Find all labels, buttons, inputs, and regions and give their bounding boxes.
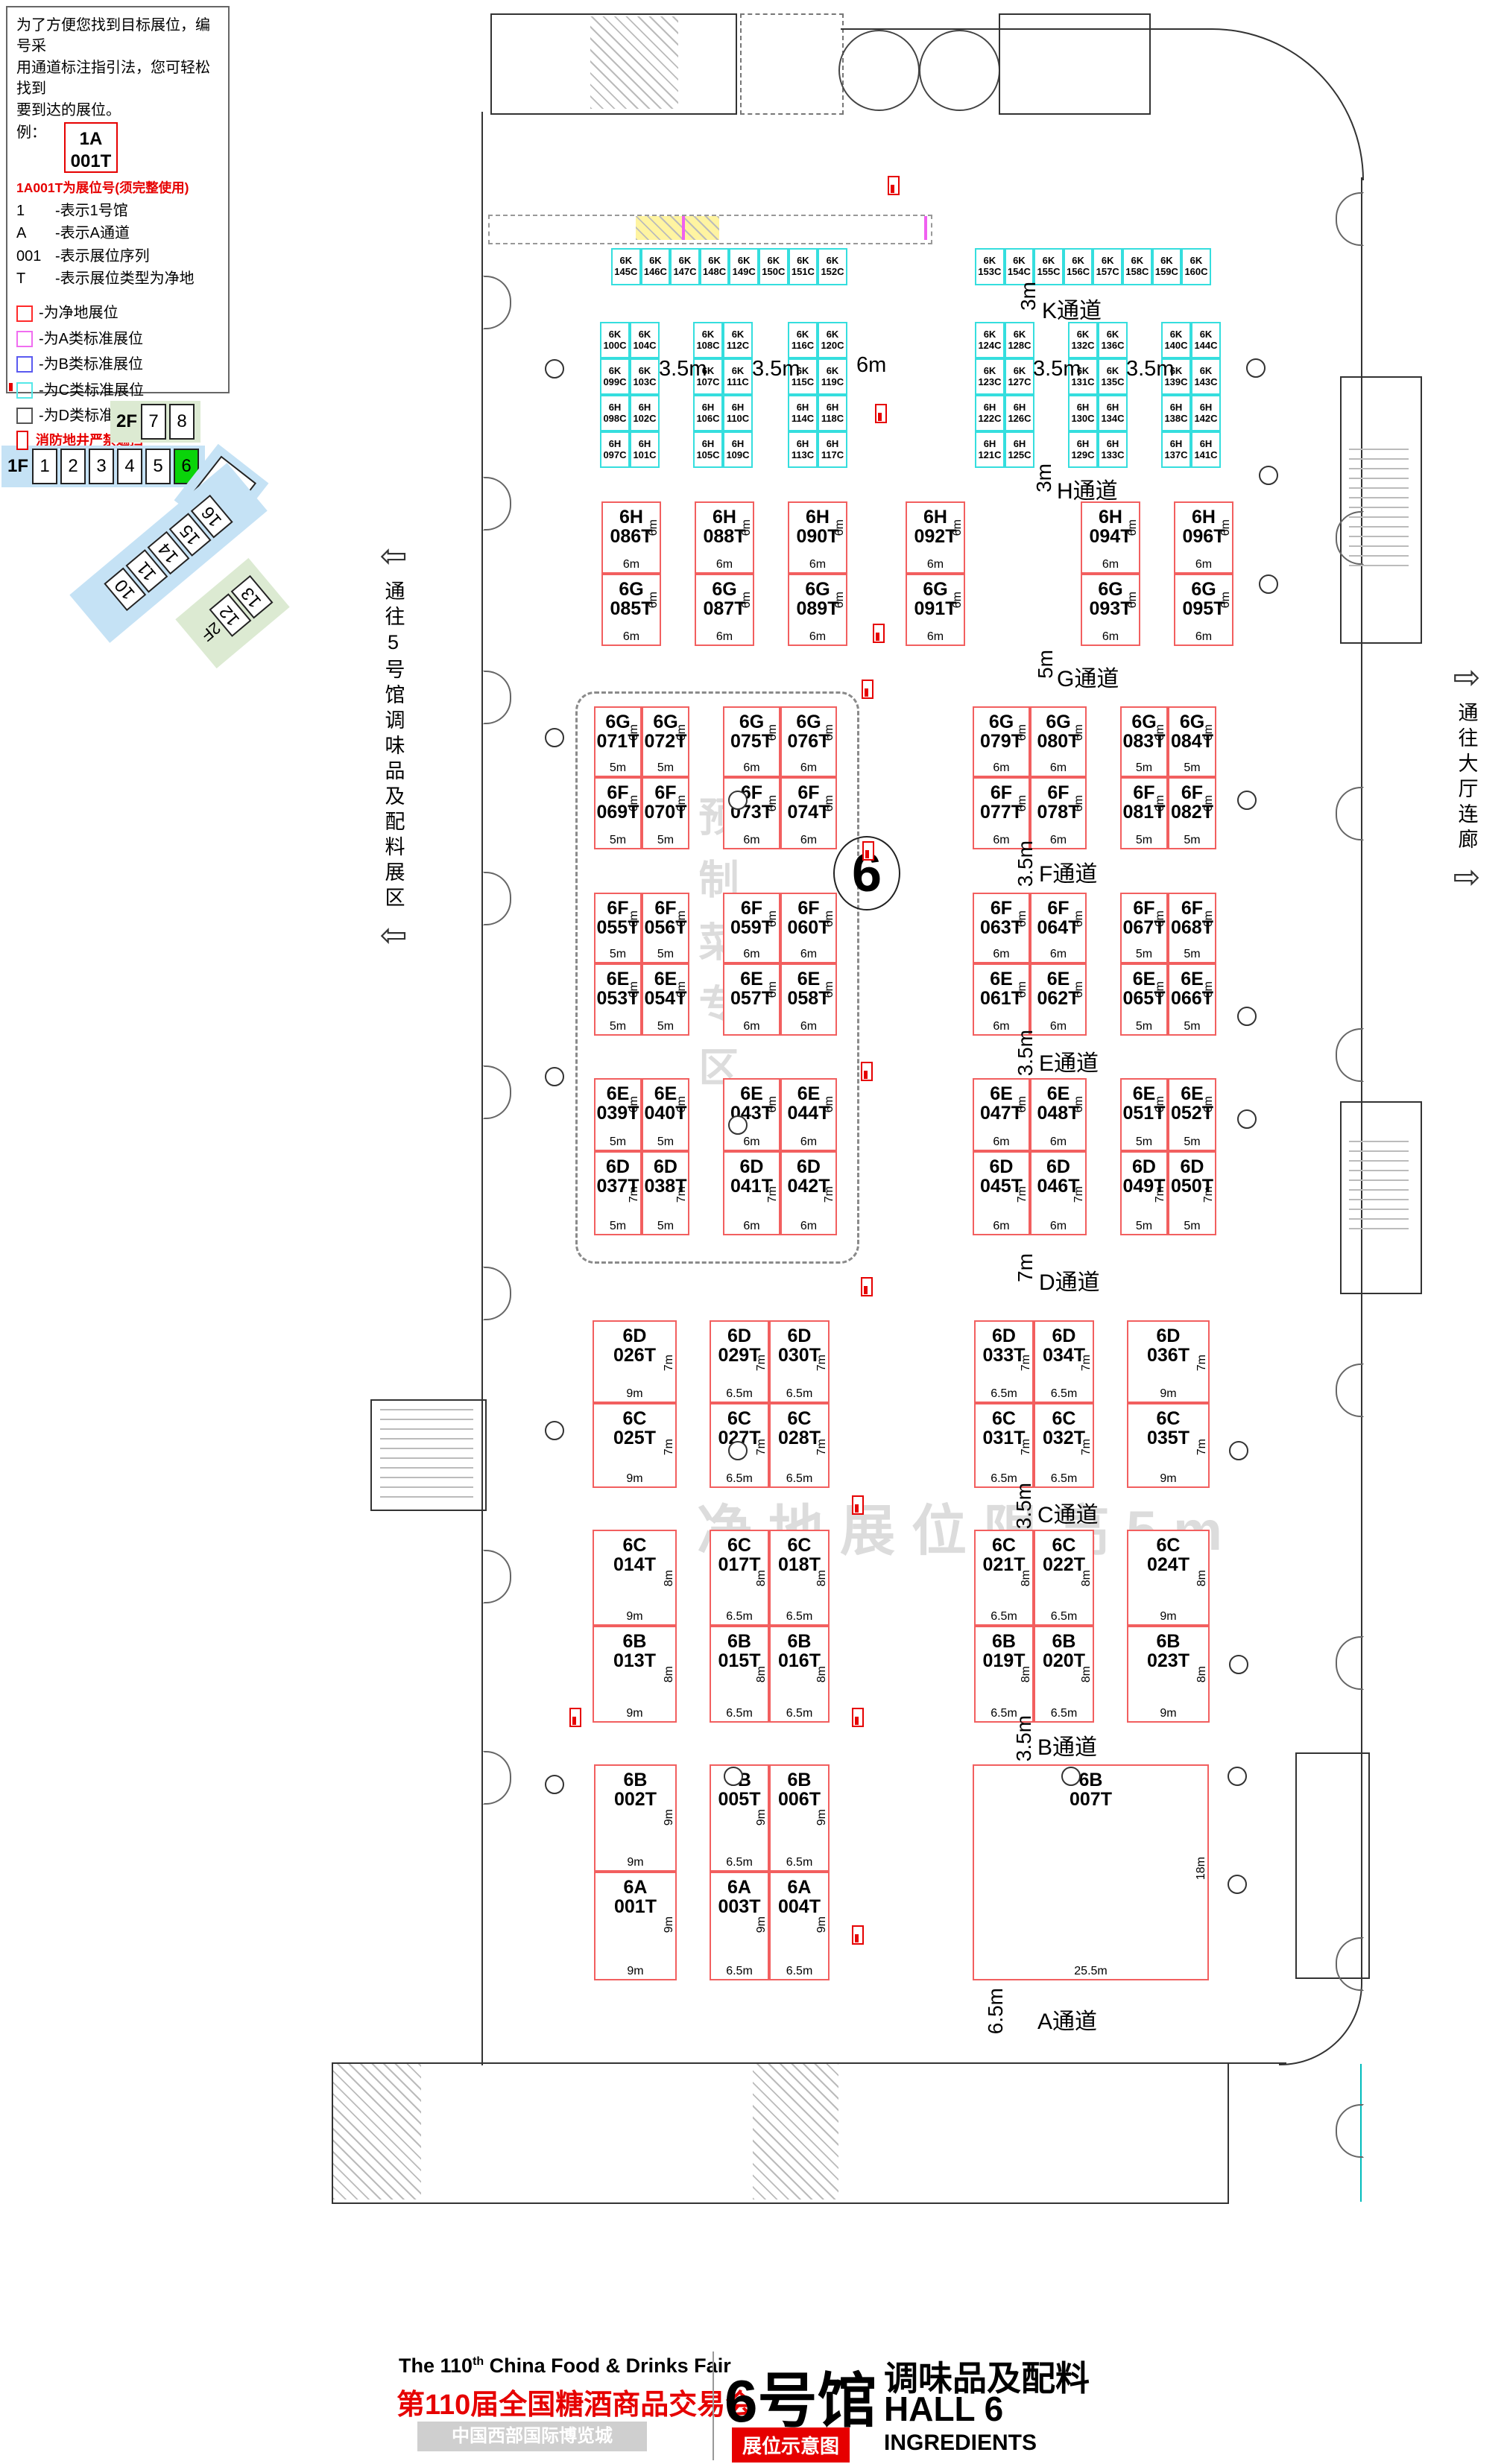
- booth-6D037T: 6D037T7m5m: [594, 1151, 642, 1235]
- pillar-icon: [724, 1767, 743, 1786]
- door-arc-icon: [1336, 1389, 1364, 1417]
- booth-type-swatch: [16, 408, 33, 424]
- booth-6E065T: 6E065T6m5m: [1120, 963, 1168, 1036]
- booth-6G080T: 6G080T6m6m: [1030, 706, 1087, 777]
- pillar-icon: [545, 1421, 564, 1440]
- booth-6C032T: 6C032T7m6.5m: [1034, 1403, 1094, 1488]
- booth-6H141C: 6H141C: [1191, 431, 1221, 468]
- booth-6G072T: 6G072T6m5m: [642, 706, 689, 777]
- minimap-hall-1: 1: [32, 449, 57, 484]
- booth-6K146C: 6K146C: [641, 248, 671, 285]
- booth-6E047T: 6E047T6m6m: [973, 1078, 1030, 1151]
- legend-type-row: -为净地展位: [16, 303, 219, 323]
- door-arc-icon: [1336, 1662, 1364, 1690]
- booth-6C018T: 6C018T8m6.5m: [769, 1530, 830, 1626]
- booth-6H113C: 6H113C: [788, 431, 818, 468]
- pillar-icon: [1228, 1767, 1247, 1786]
- fire-well-icon: [852, 1495, 864, 1515]
- booth-6G079T: 6G079T6m6m: [973, 706, 1030, 777]
- booth-6K136C: 6K136C: [1098, 322, 1128, 358]
- legend-code-row: T-表示展位类型为净地: [16, 268, 219, 289]
- fire-well-icon: [862, 841, 874, 861]
- door-arc-icon: [1336, 787, 1364, 815]
- booth-6K148C: 6K148C: [700, 248, 730, 285]
- legend-type-row: -为B类标准展位: [16, 354, 219, 375]
- booth-6F067T: 6F067T6m5m: [1120, 893, 1168, 963]
- door-arc-icon: [483, 1776, 511, 1805]
- booth-6E043T: 6E043T6m6m: [723, 1078, 780, 1151]
- booth-6K150C: 6K150C: [759, 248, 789, 285]
- door-arc-icon: [483, 276, 511, 304]
- booth-6H109C: 6H109C: [723, 431, 753, 468]
- booth-6G095T: 6G095T6m6m: [1174, 574, 1233, 646]
- booth-type-swatch: [16, 356, 33, 373]
- booth-6F060T: 6F060T6m6m: [780, 893, 837, 963]
- pillar-icon: [1237, 791, 1257, 810]
- fire-well-icon: [861, 1277, 873, 1296]
- door-arc-icon: [483, 1292, 511, 1320]
- minimap-hall-2: 2: [60, 449, 86, 484]
- booth-6D033T: 6D033T7m6.5m: [974, 1320, 1034, 1403]
- door-arc-icon: [1336, 1054, 1364, 1082]
- booth-6K100C: 6K100C: [600, 322, 630, 358]
- aisle-H-width: 3m: [1032, 463, 1056, 493]
- aisle-C-width: 3.5m: [1012, 1483, 1036, 1529]
- legend-intro-line: 要到达的展位。: [16, 100, 219, 121]
- booth-6H142C: 6H142C: [1191, 395, 1221, 431]
- legend-code-row: A-表示A通道: [16, 223, 219, 244]
- booth-6C028T: 6C028T7m6.5m: [769, 1403, 830, 1488]
- pillar-icon: [1259, 574, 1278, 594]
- booth-6K108C: 6K108C: [693, 322, 723, 358]
- minimap-hall-4: 4: [117, 449, 142, 484]
- pillar-icon: [1237, 1007, 1257, 1026]
- booth-6E058T: 6E058T6m6m: [780, 963, 837, 1036]
- fire-well-icon: [569, 1708, 581, 1727]
- right-arrow-icon: ⇨: [1453, 662, 1481, 694]
- booth-6F063T: 6F063T6m6m: [973, 893, 1030, 963]
- pillar-icon: [1259, 466, 1278, 485]
- booth-6F064T: 6F064T6m6m: [1030, 893, 1087, 963]
- booth-6E061T: 6E061T6m6m: [973, 963, 1030, 1036]
- minimap-floor2-label: 2F: [116, 411, 137, 432]
- booth-6K103C: 6K103C: [630, 358, 660, 395]
- aisle-A-width: 6.5m: [984, 1988, 1008, 2034]
- booth-type-swatch: [16, 382, 33, 399]
- booth-6D050T: 6D050T7m5m: [1168, 1151, 1216, 1235]
- minimap-floor1-halls: 123456: [32, 449, 199, 484]
- booth-6H097C: 6H097C: [600, 431, 630, 468]
- booth-6E053T: 6E053T6m5m: [594, 963, 642, 1036]
- door-arc-icon: [483, 872, 511, 900]
- minimap-floor2: 2F 78: [110, 401, 200, 443]
- route-to-hall5-label: ⇦ 通往5号馆调味品及配料展区 ⇦: [371, 540, 416, 952]
- minimap-floor2-halls: 78: [141, 404, 195, 440]
- legend-intro-line: 用通道标注指引法，您可轻松找到: [16, 57, 219, 100]
- booth-6K099C: 6K099C: [600, 358, 630, 395]
- fire-well-icon: [862, 680, 873, 699]
- booth-6E039T: 6E039T6m5m: [594, 1078, 642, 1151]
- booth-6E052T: 6E052T6m5m: [1168, 1078, 1216, 1151]
- door-arc-icon: [483, 897, 511, 925]
- legend-code-row: 1-表示1号馆: [16, 200, 219, 221]
- fire-well-icon: [861, 1062, 873, 1081]
- stairs-hatch: [590, 16, 678, 109]
- pillar-icon: [1228, 1875, 1247, 1894]
- legend-type-row: -为C类标准展位: [16, 380, 219, 401]
- booth-6D046T: 6D046T7m6m: [1030, 1151, 1087, 1235]
- booth-6G076T: 6G076T6m6m: [780, 706, 837, 777]
- booth-6K128C: 6K128C: [1005, 322, 1034, 358]
- booth-6B013T: 6B013T8m9m: [593, 1626, 677, 1723]
- booth-6H122C: 6H122C: [975, 395, 1005, 431]
- booth-6E051T: 6E051T6m5m: [1120, 1078, 1168, 1151]
- booth-6F077T: 6F077T6m6m: [973, 777, 1030, 849]
- booth-6H121C: 6H121C: [975, 431, 1005, 468]
- aisle-C-name: C通道: [1037, 1496, 1099, 1529]
- booth-6H125C: 6H125C: [1005, 431, 1034, 468]
- booth-6H101C: 6H101C: [630, 431, 660, 468]
- booth-6E062T: 6E062T6m6m: [1030, 963, 1087, 1036]
- pillar-icon: [728, 1115, 748, 1135]
- booth-6C021T: 6C021T8m6.5m: [974, 1530, 1034, 1626]
- venue-bar: 中国西部国际博览城: [417, 2422, 647, 2451]
- booth-6F055T: 6F055T6m5m: [594, 893, 642, 963]
- minimap-hall-7: 7: [141, 404, 166, 440]
- booth-6H110C: 6H110C: [723, 395, 753, 431]
- booth-6F081T: 6F081T6m5m: [1120, 777, 1168, 849]
- aisle-G-width: 5m: [1034, 650, 1058, 679]
- aisle-A-name: A通道: [1037, 2003, 1097, 2036]
- example-booth-line2: 001T: [66, 151, 116, 173]
- booth-6K120C: 6K120C: [818, 322, 847, 358]
- left-arrow-icon: ⇦: [380, 919, 408, 952]
- wall-bottom: [1226, 2062, 1286, 2064]
- booth-6H090T: 6H090T6m6m: [788, 501, 847, 574]
- gap-width-label: 3.5m: [659, 357, 707, 381]
- booth-6H126C: 6H126C: [1005, 395, 1034, 431]
- pillar-icon: [728, 1441, 748, 1460]
- magenta-tick: [682, 216, 685, 240]
- pillar-icon: [1237, 1109, 1257, 1129]
- booth-6K160C: 6K160C: [1181, 248, 1211, 285]
- booth-6F070T: 6F070T6m5m: [642, 777, 689, 849]
- gap-width-label: 6m: [856, 353, 886, 378]
- door-arc-icon: [483, 1267, 511, 1295]
- fire-well-icon: [873, 624, 885, 643]
- aisle-B-name: B通道: [1037, 1729, 1097, 1761]
- booth-6H088T: 6H088T6m6m: [695, 501, 754, 574]
- gap-width-label: 3.5m: [752, 357, 800, 381]
- booth-6E040T: 6E040T6m5m: [642, 1078, 689, 1151]
- booth-6H129C: 6H129C: [1068, 431, 1098, 468]
- minimap-diagonal-2f: 2F 1213: [175, 558, 289, 668]
- stairs-hatch: [753, 2064, 838, 2199]
- booth-6H105C: 6H105C: [693, 431, 723, 468]
- booth-6K112C: 6K112C: [723, 322, 753, 358]
- booth-6F068T: 6F068T6m5m: [1168, 893, 1216, 963]
- booth-6K132C: 6K132C: [1068, 322, 1098, 358]
- booth-6A001T: 6A001T9m9m: [594, 1872, 677, 1980]
- booth-6B015T: 6B015T8m6.5m: [710, 1626, 769, 1723]
- minimap-floor1: 1F 123456: [1, 446, 205, 487]
- booth-6K152C: 6K152C: [818, 248, 847, 285]
- aisle-K-name: K通道: [1042, 292, 1102, 325]
- booth-6A003T: 6A003T9m6.5m: [710, 1872, 769, 1980]
- aisle-K-width: 3m: [1017, 282, 1040, 311]
- booth-6H114C: 6H114C: [788, 395, 818, 431]
- aisle-E-width: 3.5m: [1014, 1030, 1037, 1076]
- door-arc-icon: [483, 1751, 511, 1779]
- booth-6G087T: 6G087T6m6m: [695, 574, 754, 646]
- booth-6H092T: 6H092T6m6m: [906, 501, 965, 574]
- booth-6E048T: 6E048T6m6m: [1030, 1078, 1087, 1151]
- booth-6K127C: 6K127C: [1005, 358, 1034, 395]
- booth-6H094T: 6H094T6m6m: [1081, 501, 1140, 574]
- booth-6K111C: 6K111C: [723, 358, 753, 395]
- booth-6G091T: 6G091T6m6m: [906, 574, 965, 646]
- booth-6E044T: 6E044T6m6m: [780, 1078, 837, 1151]
- aisle-G-name: G通道: [1057, 660, 1119, 693]
- wall-corner-topright: [1148, 28, 1364, 180]
- entrance-revolving-door: [919, 30, 1000, 111]
- door-arc-icon: [1336, 1636, 1364, 1665]
- door-arc-icon: [483, 1575, 511, 1603]
- booth-type-swatch: [16, 305, 33, 322]
- booth-6K156C: 6K156C: [1064, 248, 1093, 285]
- booth-6K144C: 6K144C: [1191, 322, 1221, 358]
- booth-type-swatch: [16, 331, 33, 347]
- legend-type-row: -为A类标准展位: [16, 329, 219, 349]
- booth-6C025T: 6C025T7m9m: [593, 1403, 677, 1488]
- booth-6F082T: 6F082T6m5m: [1168, 777, 1216, 849]
- pillar-icon: [1229, 1655, 1248, 1674]
- pillar-icon: [545, 728, 564, 747]
- door-arc-icon: [483, 671, 511, 699]
- booth-6F078T: 6F078T6m6m: [1030, 777, 1087, 849]
- pillar-icon: [1246, 358, 1266, 378]
- door-arc-icon: [483, 1065, 511, 1094]
- booth-6C017T: 6C017T8m6.5m: [710, 1530, 769, 1626]
- booth-6E057T: 6E057T6m6m: [723, 963, 780, 1036]
- magenta-tick: [924, 216, 927, 240]
- booth-6G093T: 6G093T6m6m: [1081, 574, 1140, 646]
- pillar-icon: [1229, 1441, 1248, 1460]
- booth-6B002T: 6B002T9m9m: [594, 1764, 677, 1872]
- category-title-en: INGREDIENTS: [884, 2430, 1037, 2456]
- booth-6B020T: 6B020T8m6.5m: [1034, 1626, 1094, 1723]
- booth-6K157C: 6K157C: [1093, 248, 1122, 285]
- booth-6C014T: 6C014T8m9m: [593, 1530, 677, 1626]
- booth-6F056T: 6F056T6m5m: [642, 893, 689, 963]
- pillar-icon: [728, 791, 748, 810]
- pillar-icon: [545, 359, 564, 379]
- aisle-H-name: H通道: [1057, 472, 1118, 505]
- booth-6F069T: 6F069T6m5m: [594, 777, 642, 849]
- door-arc-icon: [483, 477, 511, 505]
- stairs-hatch: [333, 2064, 421, 2199]
- booth-6K119C: 6K119C: [818, 358, 847, 395]
- booth-6K155C: 6K155C: [1034, 248, 1064, 285]
- booth-6D030T: 6D030T7m6.5m: [769, 1320, 830, 1403]
- booth-6K159C: 6K159C: [1152, 248, 1182, 285]
- booth-6H138C: 6H138C: [1161, 395, 1191, 431]
- booth-6K123C: 6K123C: [975, 358, 1005, 395]
- door-arc-icon: [483, 502, 511, 531]
- right-arrow-icon: ⇨: [1453, 861, 1481, 894]
- legend-example-note: 1A001T为展位号(须完整使用): [16, 179, 219, 197]
- door-arc-icon: [483, 301, 511, 329]
- booth-6K147C: 6K147C: [670, 248, 700, 285]
- booth-6B016T: 6B016T8m6.5m: [769, 1626, 830, 1723]
- aisle-F-width: 3.5m: [1014, 840, 1037, 887]
- hall-title-cn: 6号馆: [724, 2353, 877, 2439]
- minimap-floor1-label: 1F: [7, 456, 28, 477]
- hall-title-en: HALL 6: [884, 2389, 1003, 2429]
- fire-well-icon: [852, 1708, 864, 1727]
- stairs-hatch: [380, 1408, 473, 1498]
- wall-top: [841, 28, 1152, 30]
- door-arc-icon: [483, 696, 511, 724]
- door-arc-icon: [1336, 192, 1364, 221]
- booth-6G071T: 6G071T6m5m: [594, 706, 642, 777]
- door-arc-icon: [1336, 1028, 1364, 1057]
- stair-strip-highlight: [636, 216, 719, 240]
- aisle-E-name: E通道: [1039, 1045, 1099, 1077]
- booth-6H117C: 6H117C: [818, 431, 847, 468]
- booth-6F073T: 6F073T6m6m: [723, 777, 780, 849]
- booth-6K153C: 6K153C: [975, 248, 1005, 285]
- fire-well-icon: [875, 404, 887, 423]
- booth-6D029T: 6D029T7m6.5m: [710, 1320, 769, 1403]
- door-arc-icon: [1336, 218, 1364, 246]
- example-booth-line1: 1A: [66, 128, 116, 151]
- door-arc-icon: [483, 1550, 511, 1578]
- entrance-revolving-door: [838, 30, 920, 111]
- booth-6H086T: 6H086T6m6m: [601, 501, 661, 574]
- booth-6H096T: 6H096T6m6m: [1174, 501, 1233, 574]
- booth-6K151C: 6K151C: [789, 248, 818, 285]
- booth-6H102C: 6H102C: [630, 395, 660, 431]
- aisle-F-name: F通道: [1039, 855, 1097, 888]
- booth-6H137C: 6H137C: [1161, 431, 1191, 468]
- booth-6B023T: 6B023T8m9m: [1127, 1626, 1210, 1723]
- left-arrow-icon: ⇦: [380, 540, 408, 573]
- footer-divider: [713, 2351, 714, 2460]
- booth-6B007T: 6B007T18m25.5m: [973, 1764, 1209, 1980]
- top-room-block: [740, 13, 844, 115]
- booth-6D042T: 6D042T7m6m: [780, 1151, 837, 1235]
- booth-6K116C: 6K116C: [788, 322, 818, 358]
- booth-6D038T: 6D038T7m5m: [642, 1151, 689, 1235]
- booth-6D036T: 6D036T7m9m: [1127, 1320, 1210, 1403]
- hall6-floorplan: 为了方便您找到目标展位，编号采 用通道标注指引法，您可轻松找到 要到达的展位。 …: [0, 0, 1507, 2464]
- stairs-hatch: [1349, 1140, 1409, 1229]
- booth-6K154C: 6K154C: [1005, 248, 1034, 285]
- pillar-icon: [545, 1775, 564, 1794]
- minimap-hall-8: 8: [169, 404, 195, 440]
- booth-6K149C: 6K149C: [729, 248, 759, 285]
- booth-6B006T: 6B006T9m6.5m: [769, 1764, 830, 1872]
- booth-6D034T: 6D034T7m6.5m: [1034, 1320, 1094, 1403]
- booth-6G075T: 6G075T6m6m: [723, 706, 780, 777]
- booth-6H130C: 6H130C: [1068, 395, 1098, 431]
- booth-6H106C: 6H106C: [693, 395, 723, 431]
- fair-title-en: The 110th China Food & Drinks Fair: [399, 2354, 731, 2378]
- booth-6K145C: 6K145C: [611, 248, 641, 285]
- minimap-hall-3: 3: [89, 449, 114, 484]
- booth-6G083T: 6G083T6m5m: [1120, 706, 1168, 777]
- booth-6G084T: 6G084T6m5m: [1168, 706, 1216, 777]
- gap-width-label: 3.5m: [1126, 357, 1174, 381]
- minimap-hall-5: 5: [145, 449, 171, 484]
- booth-6C031T: 6C031T7m6.5m: [974, 1403, 1034, 1488]
- booth-6C035T: 6C035T7m9m: [1127, 1403, 1210, 1488]
- legend-box: 为了方便您找到目标展位，编号采 用通道标注指引法，您可轻松找到 要到达的展位。 …: [6, 6, 230, 393]
- booth-6H098C: 6H098C: [600, 395, 630, 431]
- booth-6E066T: 6E066T6m5m: [1168, 963, 1216, 1036]
- route-to-lobby-label: ⇨ 通往大厅连廊 ⇨: [1444, 662, 1489, 894]
- booth-6K135C: 6K135C: [1098, 358, 1128, 395]
- booth-6H134C: 6H134C: [1098, 395, 1128, 431]
- booth-6K140C: 6K140C: [1161, 322, 1191, 358]
- fire-well-icon: [888, 176, 900, 195]
- door-arc-icon: [483, 1091, 511, 1119]
- door-arc-icon: [1336, 1364, 1364, 1392]
- booth-6K158C: 6K158C: [1122, 248, 1152, 285]
- booth-6E054T: 6E054T6m5m: [642, 963, 689, 1036]
- booth-6C022T: 6C022T8m6.5m: [1034, 1530, 1094, 1626]
- booth-6A004T: 6A004T9m6.5m: [769, 1872, 830, 1980]
- example-booth: 1A 001T: [64, 122, 118, 173]
- legend-example-label: 例：: [16, 122, 46, 143]
- badge-booth-schematic: 展位示意图: [732, 2427, 850, 2463]
- aisle-D-name: D通道: [1039, 1264, 1100, 1296]
- aisle-D-width: 7m: [1014, 1253, 1037, 1282]
- door-arc-icon: [1336, 2129, 1364, 2158]
- pillar-icon: [545, 1067, 564, 1086]
- booth-6F059T: 6F059T6m6m: [723, 893, 780, 963]
- booth-6K143C: 6K143C: [1191, 358, 1221, 395]
- aisle-B-width: 3.5m: [1012, 1715, 1036, 1761]
- booth-6D049T: 6D049T7m5m: [1120, 1151, 1168, 1235]
- fire-well-icon: [16, 431, 28, 450]
- booth-6K104C: 6K104C: [630, 322, 660, 358]
- fire-well-icon: [852, 1925, 864, 1945]
- pillar-icon: [1061, 1767, 1081, 1786]
- booth-6C024T: 6C024T8m9m: [1127, 1530, 1210, 1626]
- booth-6K124C: 6K124C: [975, 322, 1005, 358]
- legend-code-row: 001-表示展位序列: [16, 246, 219, 267]
- gap-width-label: 3.5m: [1033, 357, 1081, 381]
- booth-6B019T: 6B019T8m6.5m: [974, 1626, 1034, 1723]
- booth-6G089T: 6G089T6m6m: [788, 574, 847, 646]
- legend-intro-line: 为了方便您找到目标展位，编号采: [16, 15, 219, 57]
- booth-6D026T: 6D026T7m9m: [593, 1320, 677, 1403]
- booth-6H118C: 6H118C: [818, 395, 847, 431]
- door-arc-icon: [1336, 2104, 1364, 2132]
- booth-6D041T: 6D041T7m6m: [723, 1151, 780, 1235]
- fair-title-cn: 第110届全国糖酒商品交易会: [397, 2381, 753, 2422]
- booth-6H133C: 6H133C: [1098, 431, 1128, 468]
- door-arc-icon: [1336, 812, 1364, 840]
- booth-6G085T: 6G085T6m6m: [601, 574, 661, 646]
- booth-6D045T: 6D045T7m6m: [973, 1151, 1030, 1235]
- booth-6F074T: 6F074T6m6m: [780, 777, 837, 849]
